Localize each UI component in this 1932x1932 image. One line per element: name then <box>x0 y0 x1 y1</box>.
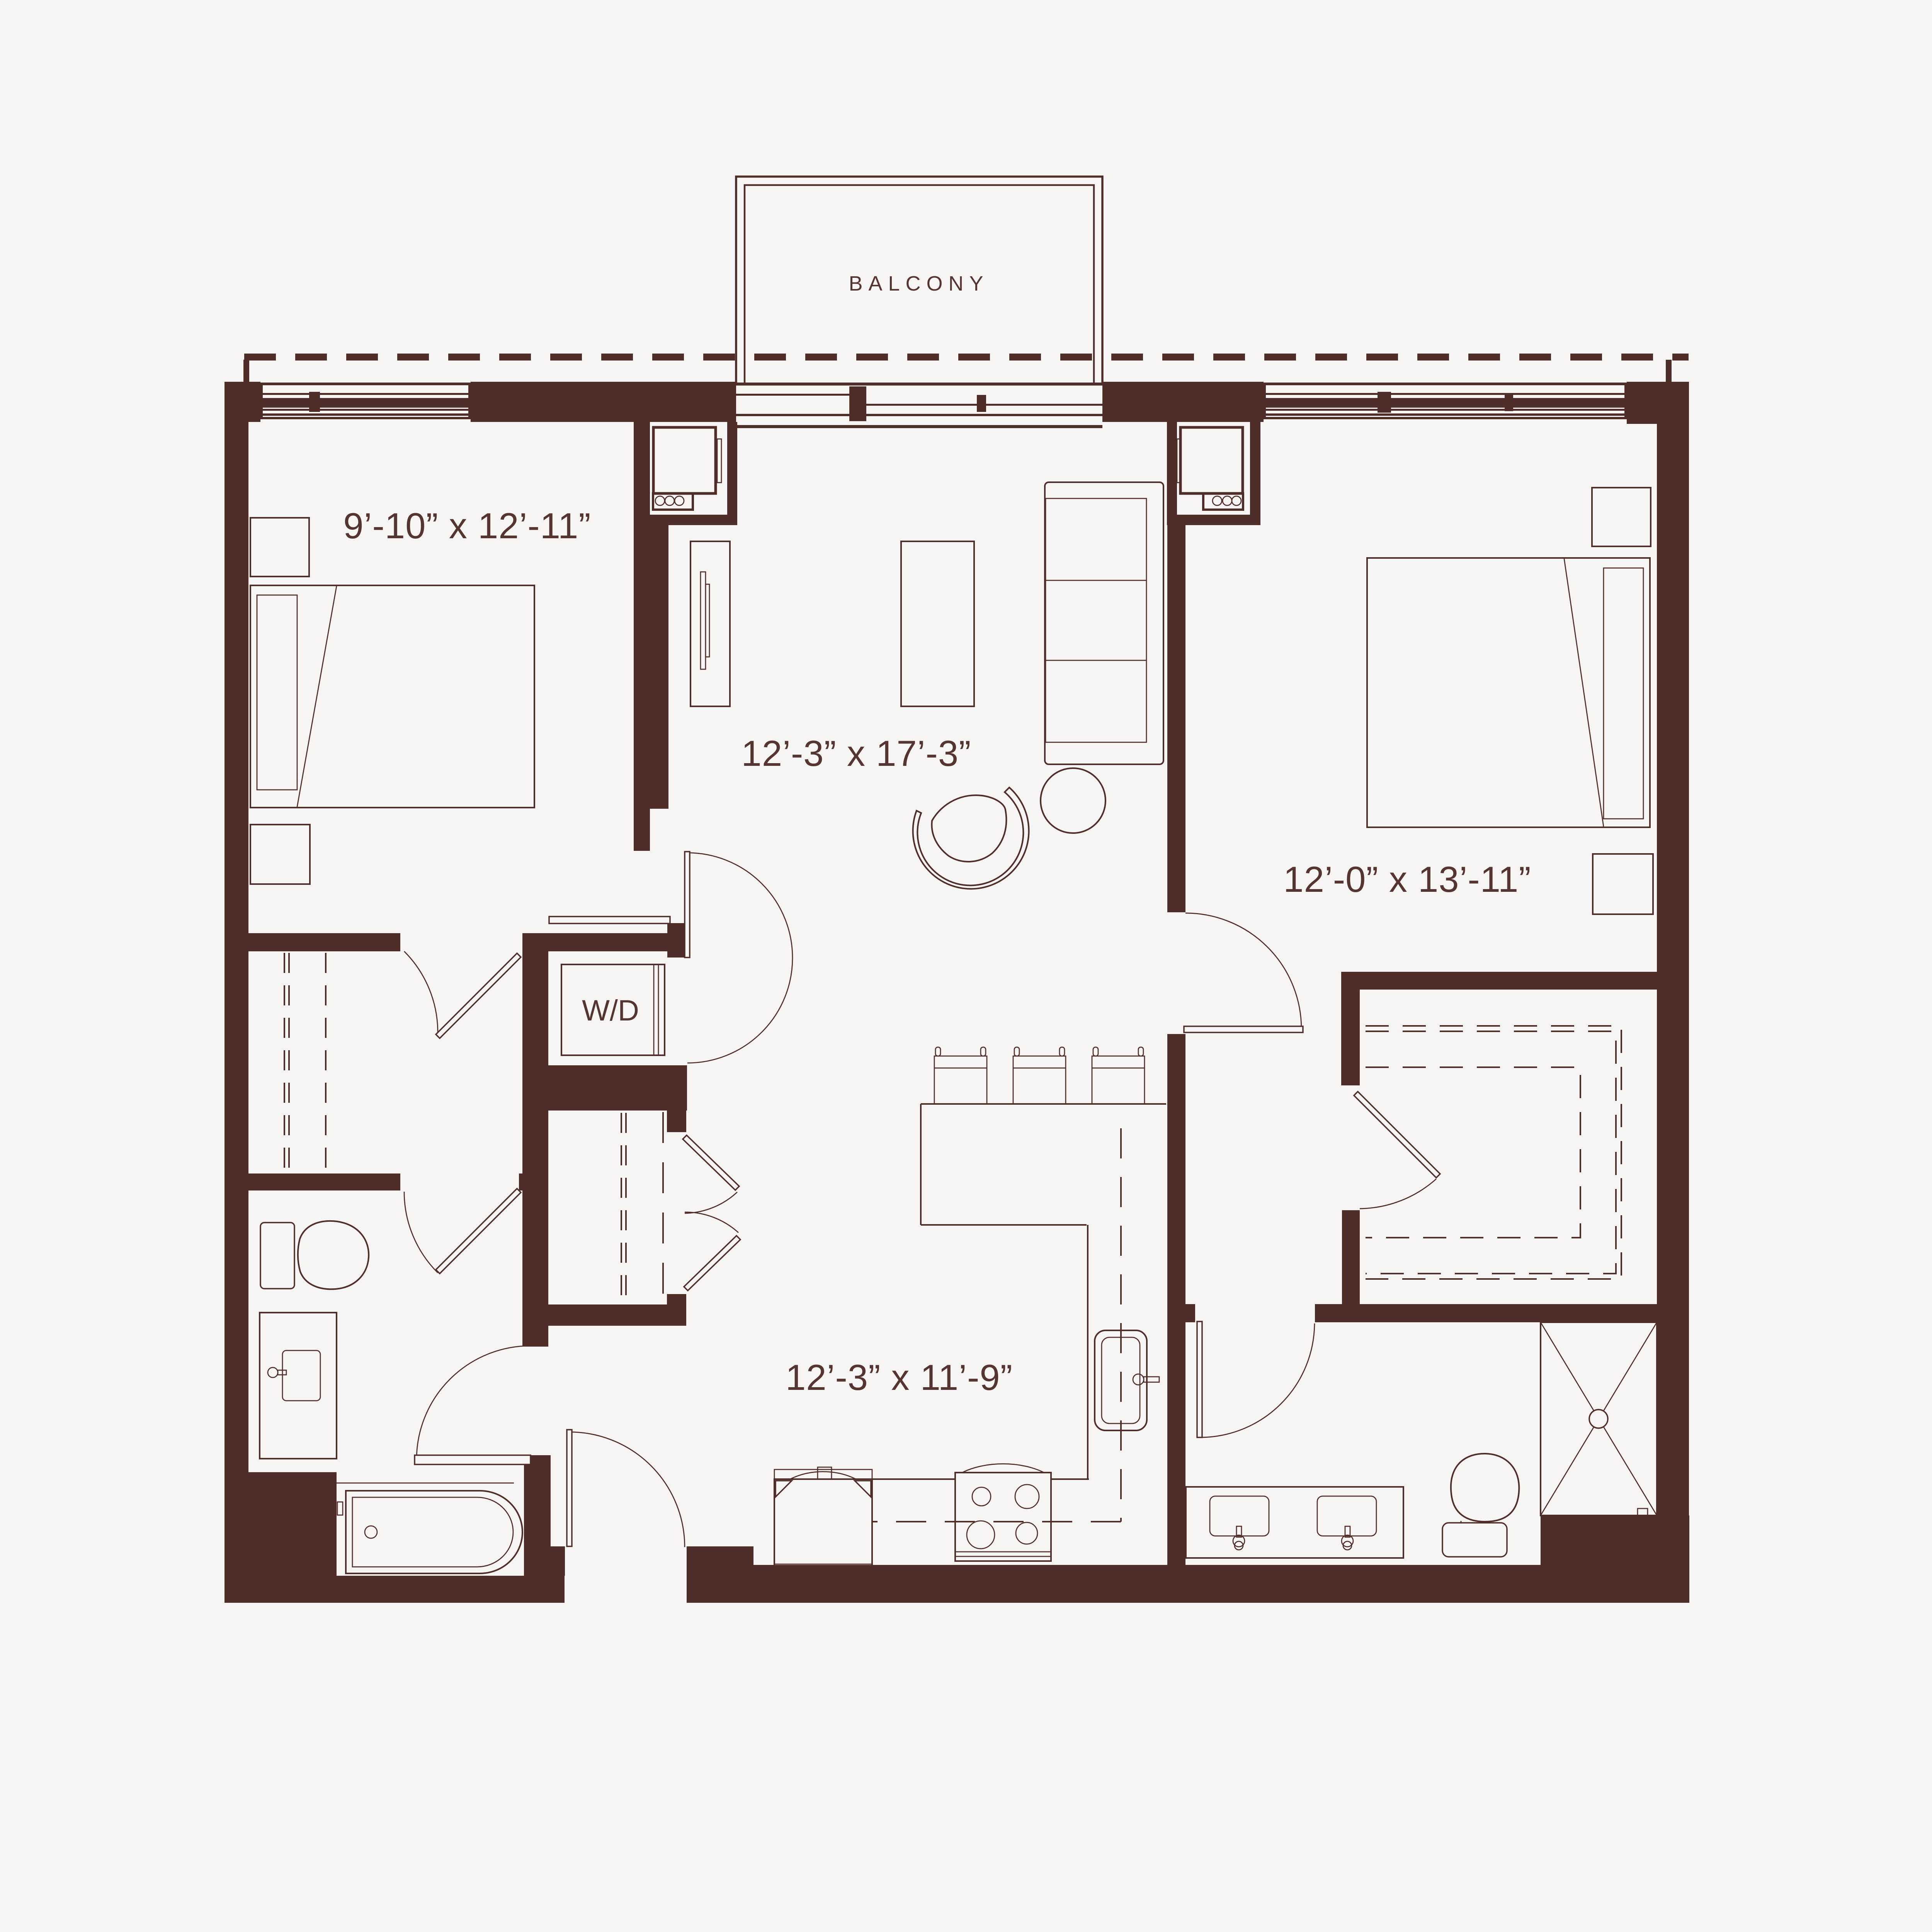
svg-text:12’-3” x 11’-9”: 12’-3” x 11’-9” <box>786 1357 1013 1398</box>
svg-text:9’-10” x 12’-11”: 9’-10” x 12’-11” <box>343 505 591 546</box>
svg-text:BALCONY: BALCONY <box>849 272 989 295</box>
svg-text:W/D: W/D <box>582 994 639 1027</box>
svg-text:12’-0” x 13’-11”: 12’-0” x 13’-11” <box>1283 859 1531 900</box>
svg-text:12’-3” x 17’-3”: 12’-3” x 17’-3” <box>742 733 971 774</box>
